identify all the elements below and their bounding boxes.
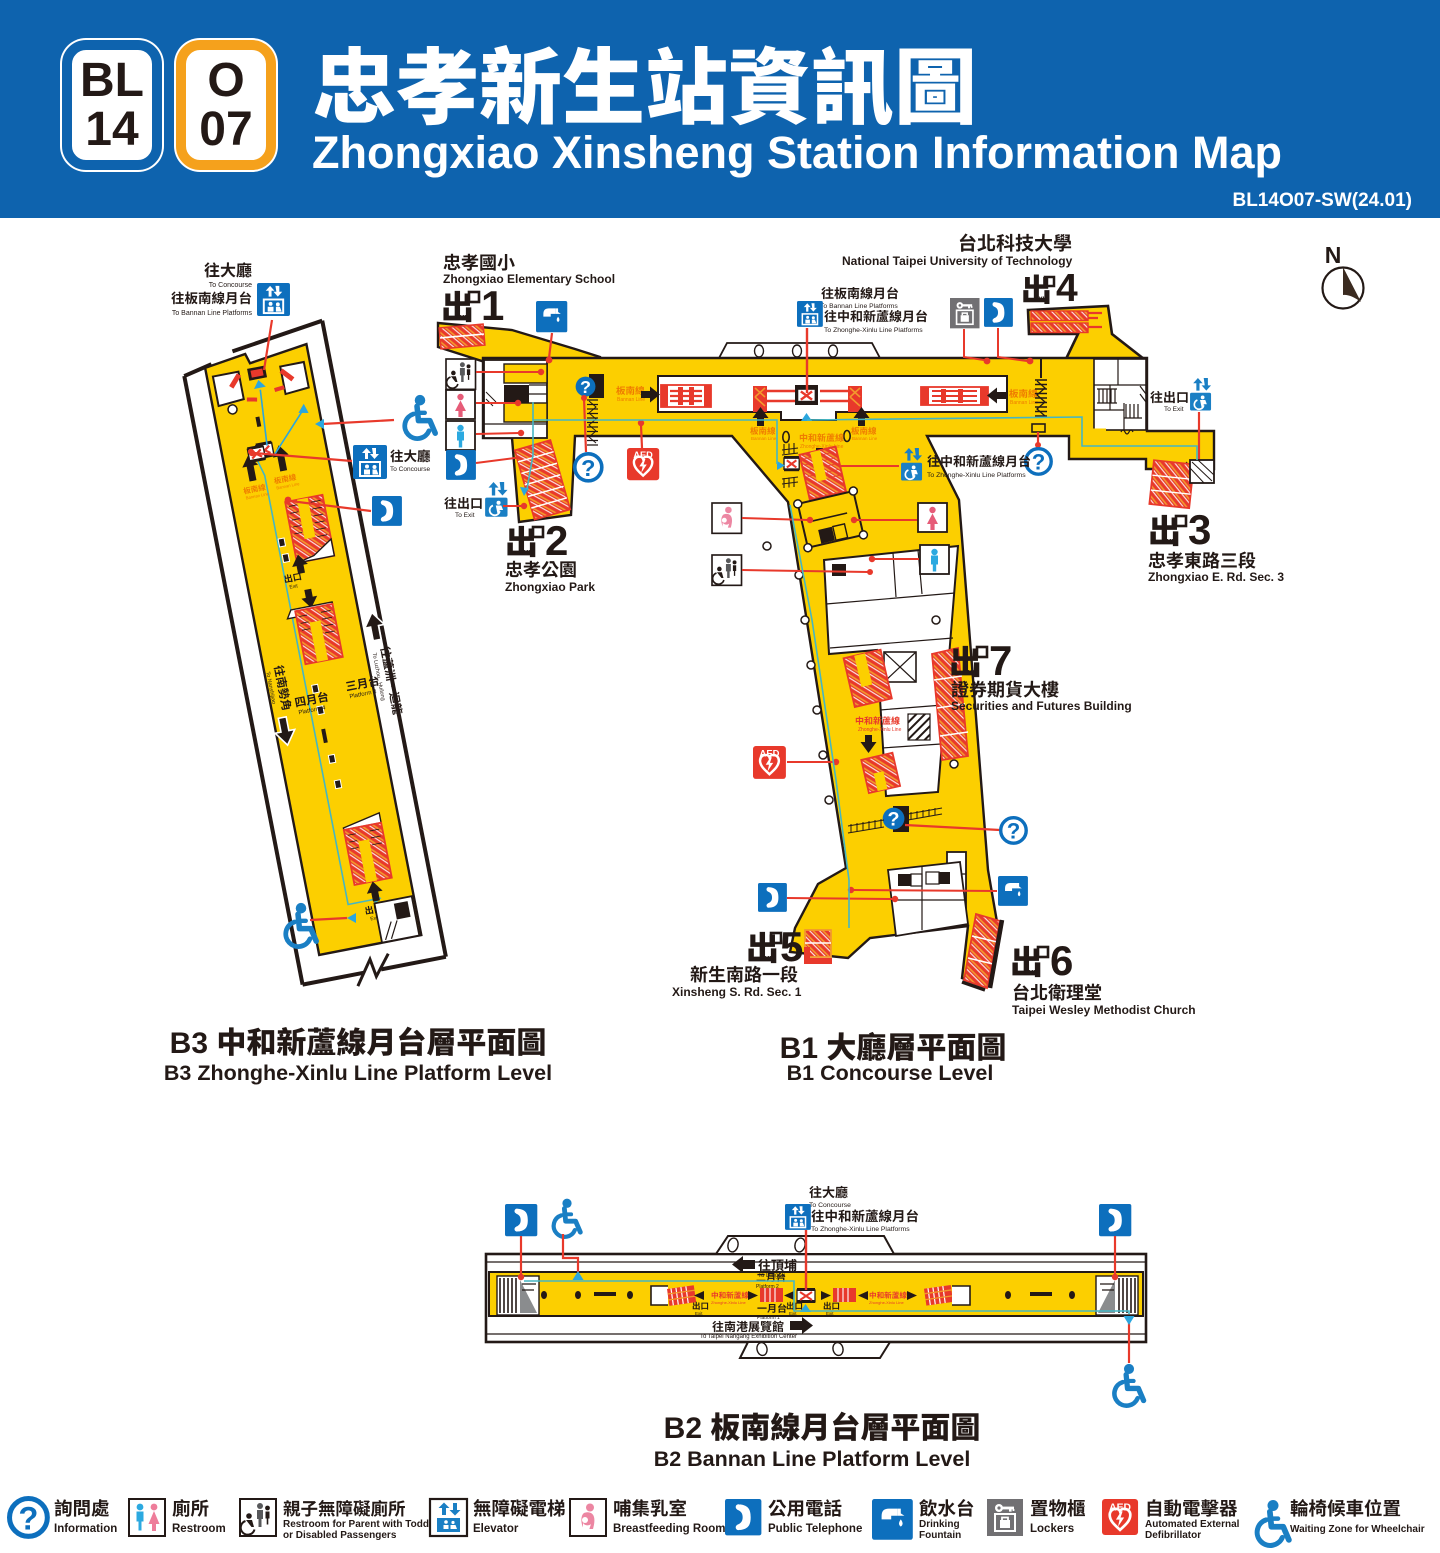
svg-text:Zhonghe-Xinlu Line: Zhonghe-Xinlu Line bbox=[858, 727, 902, 733]
svg-text:往大廳: 往大廳 bbox=[809, 1182, 848, 1201]
svg-text:Lockers: Lockers bbox=[1030, 1523, 1074, 1535]
svg-text:To Concourse: To Concourse bbox=[390, 466, 430, 473]
svg-text:Zhongxiao Park: Zhongxiao Park bbox=[505, 580, 595, 594]
svg-text:中和新蘆線: 中和新蘆線 bbox=[855, 714, 900, 727]
svg-text:Platform 2: Platform 2 bbox=[756, 1284, 779, 1290]
svg-text:To Zhonghe-Xinlu Line Platform: To Zhonghe-Xinlu Line Platforms bbox=[824, 327, 923, 334]
svg-text:B3 Zhonghe-Xinlu Line Platform: B3 Zhonghe-Xinlu Line Platform Level bbox=[164, 1061, 552, 1085]
svg-text:To Zhonghe-Xinlu Line Platform: To Zhonghe-Xinlu Line Platforms bbox=[927, 472, 1026, 479]
svg-text:Zhongxiao E. Rd. Sec. 3: Zhongxiao E. Rd. Sec. 3 bbox=[1148, 570, 1284, 584]
svg-text:To Exit: To Exit bbox=[455, 512, 475, 519]
svg-text:Restroom for Parent with Toddl: Restroom for Parent with Toddler bbox=[283, 1519, 441, 1530]
svg-text:Waiting Zone for Wheelchair: Waiting Zone for Wheelchair bbox=[1290, 1524, 1425, 1535]
svg-text:To Exit: To Exit bbox=[1164, 406, 1184, 413]
svg-text:往出口: 往出口 bbox=[444, 493, 483, 512]
svg-text:出: 出 bbox=[1021, 265, 1052, 310]
svg-text:Information: Information bbox=[54, 1523, 117, 1535]
svg-text:B1 Concourse Level: B1 Concourse Level bbox=[787, 1061, 994, 1085]
svg-text:往中和新蘆線月台: 往中和新蘆線月台 bbox=[811, 1205, 919, 1225]
svg-text:往中和新蘆線月台: 往中和新蘆線月台 bbox=[927, 451, 1031, 470]
svg-text:板南線: 板南線 bbox=[616, 383, 645, 397]
svg-text:板南線: 板南線 bbox=[1009, 386, 1038, 400]
svg-text:or Disabled Passengers: or Disabled Passengers bbox=[283, 1530, 397, 1541]
svg-text:4: 4 bbox=[1056, 267, 1078, 310]
svg-text:一月台: 一月台 bbox=[757, 1300, 787, 1315]
svg-text:忠孝新生站資訊圖: 忠孝新生站資訊圖 bbox=[313, 21, 977, 141]
svg-text:EXIT: EXIT bbox=[1024, 970, 1040, 977]
svg-text:Fountain: Fountain bbox=[919, 1530, 961, 1541]
svg-text:To Bannan Line Platforms: To Bannan Line Platforms bbox=[172, 310, 253, 317]
svg-text:置物櫃: 置物櫃 bbox=[1030, 1495, 1086, 1521]
svg-text:往板南線月台: 往板南線月台 bbox=[821, 283, 899, 302]
svg-text:Restroom: Restroom bbox=[172, 1523, 226, 1535]
svg-text:公用電話: 公用電話 bbox=[768, 1495, 842, 1521]
svg-text:Drinking: Drinking bbox=[919, 1519, 960, 1530]
svg-text:往頂埔: 往頂埔 bbox=[758, 1255, 797, 1274]
svg-text:詢問處: 詢問處 bbox=[54, 1495, 110, 1521]
svg-text:6: 6 bbox=[1050, 937, 1073, 984]
svg-text:忠孝公園: 忠孝公園 bbox=[505, 556, 577, 582]
svg-text:廁所: 廁所 bbox=[172, 1495, 209, 1521]
svg-text:飲水台: 飲水台 bbox=[919, 1495, 975, 1521]
svg-text:中和新蘆線: 中和新蘆線 bbox=[799, 431, 844, 444]
svg-text:往南港展覽館: 往南港展覽館 bbox=[712, 1318, 784, 1335]
svg-text:Taipei Wesley Methodist Church: Taipei Wesley Methodist Church bbox=[1012, 1003, 1196, 1017]
svg-text:To Dingpu: To Dingpu bbox=[758, 1273, 785, 1279]
svg-text:EXIT: EXIT bbox=[1034, 296, 1048, 303]
svg-text:Breastfeeding Room: Breastfeeding Room bbox=[613, 1523, 725, 1535]
svg-text:3: 3 bbox=[1188, 506, 1211, 553]
svg-text:台北衛理堂: 台北衛理堂 bbox=[1012, 979, 1102, 1005]
svg-text:To Zhonghe-Xinlu Line Platform: To Zhonghe-Xinlu Line Platforms bbox=[811, 1226, 910, 1233]
svg-text:BL14O07-SW(24.01): BL14O07-SW(24.01) bbox=[1232, 190, 1412, 211]
svg-text:N: N bbox=[1325, 242, 1342, 268]
svg-text:Xinsheng S. Rd. Sec. 1: Xinsheng S. Rd. Sec. 1 bbox=[672, 985, 802, 999]
svg-text:Public Telephone: Public Telephone bbox=[768, 1523, 862, 1535]
svg-text:07: 07 bbox=[199, 103, 252, 156]
svg-text:Securities and Futures Buildin: Securities and Futures Building bbox=[951, 699, 1132, 713]
svg-text:14: 14 bbox=[85, 103, 139, 156]
svg-text:B2 Bannan Line Platform Level: B2 Bannan Line Platform Level bbox=[654, 1447, 971, 1471]
svg-text:哺集乳室: 哺集乳室 bbox=[613, 1495, 687, 1521]
svg-text:Zhongxiao Xinsheng Station Inf: Zhongxiao Xinsheng Station Information M… bbox=[312, 127, 1282, 178]
svg-text:1: 1 bbox=[481, 282, 504, 329]
svg-text:EXIT: EXIT bbox=[1162, 539, 1178, 546]
svg-text:輪椅候車位置: 輪椅候車位置 bbox=[1290, 1495, 1401, 1521]
svg-text:Bannan Line: Bannan Line bbox=[751, 436, 777, 441]
svg-text:往中和新蘆線月台: 往中和新蘆線月台 bbox=[824, 306, 928, 325]
svg-text:To Taipei Nangang Exhibition C: To Taipei Nangang Exhibition Center bbox=[700, 1334, 797, 1340]
svg-text:Automated External: Automated External bbox=[1145, 1519, 1240, 1530]
svg-text:往大廳: 往大廳 bbox=[390, 445, 431, 465]
svg-text:Zhonghe-Xinlu Line: Zhonghe-Xinlu Line bbox=[869, 1300, 904, 1305]
svg-text:BL: BL bbox=[80, 54, 144, 107]
svg-text:台北科技大學: 台北科技大學 bbox=[958, 229, 1072, 256]
svg-text:往大廳: 往大廳 bbox=[204, 257, 252, 281]
svg-text:親子無障礙廁所: 親子無障礙廁所 bbox=[283, 1496, 406, 1521]
svg-text:Elevator: Elevator bbox=[473, 1523, 519, 1535]
svg-text:無障礙電梯: 無障礙電梯 bbox=[473, 1495, 566, 1521]
svg-text:自動電擊器: 自動電擊器 bbox=[1145, 1495, 1238, 1521]
svg-text:Defibrillator: Defibrillator bbox=[1145, 1530, 1201, 1541]
svg-text:B3 中和新蘆線月台層平面圖: B3 中和新蘆線月台層平面圖 bbox=[170, 1018, 547, 1062]
svg-text:往板南線月台: 往板南線月台 bbox=[171, 287, 252, 307]
svg-text:新生南路一段: 新生南路一段 bbox=[690, 961, 798, 987]
svg-text:Zhonghe-Xinlu Line: Zhonghe-Xinlu Line bbox=[711, 1300, 746, 1305]
svg-text:O: O bbox=[207, 54, 244, 107]
svg-text:往出口: 往出口 bbox=[1150, 387, 1189, 406]
svg-text:Exit: Exit bbox=[695, 1311, 703, 1316]
svg-text:Bannan Line: Bannan Line bbox=[1010, 400, 1038, 406]
svg-text:B2 板南線月台層平面圖: B2 板南線月台層平面圖 bbox=[664, 1403, 981, 1447]
svg-text:Bannan Line: Bannan Line bbox=[852, 436, 878, 441]
svg-text:EXIT: EXIT bbox=[455, 315, 471, 322]
